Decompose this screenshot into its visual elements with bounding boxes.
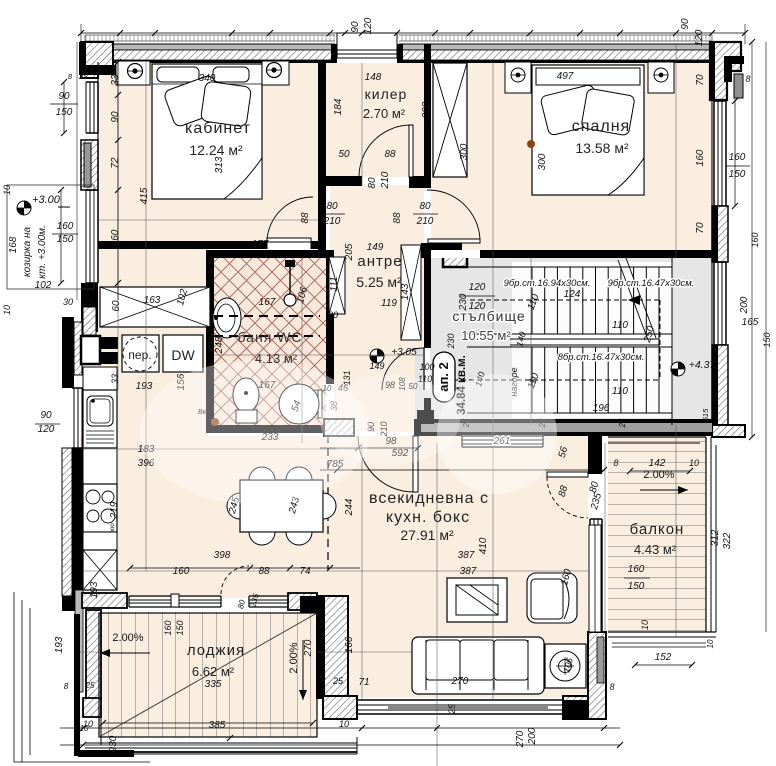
svg-text:210: 210: [323, 216, 341, 227]
svg-text:102: 102: [35, 280, 52, 291]
svg-text:80: 80: [419, 201, 431, 212]
svg-text:160: 160: [729, 152, 746, 163]
svg-text:9бр.ст.16.94х30см.: 9бр.ст.16.94х30см.: [504, 278, 591, 289]
svg-text:антре: антре: [357, 253, 402, 270]
svg-text:10.55 м²: 10.55 м²: [461, 328, 511, 343]
svg-text:88: 88: [392, 212, 403, 224]
svg-text:149: 149: [369, 361, 384, 371]
svg-text:4.13 м²: 4.13 м²: [255, 351, 298, 366]
svg-text:33: 33: [110, 374, 120, 384]
svg-text:8: 8: [320, 676, 325, 686]
svg-text:200: 200: [527, 727, 538, 745]
svg-text:300: 300: [459, 143, 470, 160]
svg-text:167: 167: [259, 297, 276, 308]
svg-text:ап. 2: ап. 2: [436, 362, 451, 392]
svg-text:90: 90: [110, 111, 121, 123]
svg-text:8: 8: [609, 682, 614, 692]
svg-text:930: 930: [108, 735, 119, 752]
svg-text:210: 210: [380, 171, 391, 189]
svg-text:335: 335: [205, 679, 222, 690]
svg-text:25: 25: [82, 297, 94, 307]
svg-text:8: 8: [745, 74, 750, 84]
svg-text:DW: DW: [171, 347, 195, 363]
svg-text:160: 160: [628, 564, 645, 575]
svg-text:килер: килер: [365, 86, 408, 102]
svg-text:+3.00: +3.00: [32, 194, 61, 206]
svg-text:+3.05: +3.05: [391, 347, 417, 358]
svg-text:25: 25: [447, 703, 457, 715]
svg-text:165: 165: [742, 317, 759, 328]
svg-text:150: 150: [729, 169, 746, 180]
svg-text:стълбище: стълбище: [452, 308, 525, 324]
svg-text:8бр.ст.16.47х30см.: 8бр.ст.16.47х30см.: [558, 352, 645, 363]
svg-text:205: 205: [344, 243, 355, 261]
svg-text:90: 90: [40, 410, 52, 421]
svg-text:142: 142: [649, 458, 666, 469]
svg-text:6.62 м²: 6.62 м²: [192, 664, 235, 679]
svg-text:4.43 м²: 4.43 м²: [634, 542, 677, 557]
svg-text:312: 312: [710, 529, 721, 546]
svg-text:163: 163: [144, 295, 161, 306]
svg-text:кухн. бокс: кухн. бокс: [386, 509, 470, 526]
svg-text:149: 149: [367, 242, 384, 253]
svg-text:90: 90: [58, 91, 70, 102]
svg-text:12.24 м²: 12.24 м²: [189, 142, 243, 158]
svg-text:70: 70: [695, 222, 706, 234]
svg-text:72: 72: [110, 157, 121, 169]
svg-text:150: 150: [57, 234, 74, 245]
svg-text:150: 150: [56, 107, 73, 118]
svg-text:10: 10: [689, 458, 699, 468]
svg-text:кт. +3.00м.: кт. +3.00м.: [37, 225, 48, 279]
svg-text:10: 10: [339, 719, 349, 729]
svg-text:150: 150: [762, 332, 772, 347]
svg-text:415: 415: [139, 187, 150, 204]
svg-text:110: 110: [612, 320, 628, 331]
svg-text:27.91 м²: 27.91 м²: [400, 527, 454, 543]
svg-text:100: 100: [419, 362, 434, 372]
svg-text:80: 80: [326, 201, 338, 212]
svg-text:пер.: пер.: [128, 348, 151, 362]
svg-text:25: 25: [618, 418, 627, 428]
svg-text:270: 270: [303, 639, 314, 657]
svg-text:160: 160: [163, 620, 173, 635]
svg-text:8: 8: [613, 458, 618, 468]
svg-text:270: 270: [515, 730, 526, 748]
svg-text:270: 270: [451, 676, 469, 687]
svg-text:340: 340: [199, 73, 216, 84]
svg-text:152: 152: [655, 652, 672, 663]
svg-text:70: 70: [695, 74, 706, 86]
svg-text:10: 10: [2, 185, 12, 195]
svg-text:балкон: балкон: [630, 521, 685, 538]
svg-text:90: 90: [350, 21, 361, 33]
svg-text:10: 10: [2, 305, 12, 315]
svg-text:398: 398: [214, 550, 231, 561]
svg-text:90: 90: [680, 18, 691, 30]
svg-text:120: 120: [363, 17, 374, 34]
svg-text:497: 497: [557, 71, 574, 82]
svg-text:120: 120: [469, 282, 486, 293]
svg-text:30: 30: [63, 297, 73, 307]
svg-text:515: 515: [701, 408, 710, 421]
svg-text:120: 120: [38, 424, 55, 435]
svg-text:119: 119: [381, 298, 397, 309]
svg-text:9бр.ст.16.47х30см.: 9бр.ст.16.47х30см.: [608, 278, 695, 289]
svg-text:160: 160: [695, 149, 706, 166]
svg-text:200: 200: [739, 296, 750, 314]
svg-text:баня WC: баня WC: [237, 329, 302, 345]
svg-text:160: 160: [110, 229, 121, 246]
svg-text:200: 200: [421, 101, 432, 119]
svg-text:111: 111: [329, 276, 340, 291]
svg-text:лоджия: лоджия: [187, 642, 245, 659]
svg-text:33: 33: [110, 74, 121, 86]
svg-text:30: 30: [328, 310, 338, 320]
svg-text:160: 160: [750, 232, 760, 247]
svg-text:230: 230: [446, 333, 456, 349]
svg-text:160: 160: [57, 221, 74, 232]
svg-text:124: 124: [564, 289, 581, 300]
svg-text:кабинет: кабинет: [185, 120, 251, 137]
svg-text:110: 110: [612, 386, 628, 397]
svg-text:387: 387: [460, 566, 477, 577]
svg-text:10: 10: [706, 639, 715, 648]
svg-text:13.58 м²: 13.58 м²: [575, 140, 629, 156]
svg-text:150: 150: [175, 620, 185, 635]
svg-text:25: 25: [78, 72, 88, 81]
svg-text:козирка на: козирка на: [22, 227, 33, 278]
svg-text:300: 300: [537, 153, 548, 170]
svg-text:всекидневна с: всекидневна с: [369, 490, 489, 507]
svg-text:244: 244: [344, 498, 355, 516]
svg-text:8: 8: [64, 682, 69, 691]
svg-text:313: 313: [214, 156, 225, 173]
svg-text:120: 120: [694, 29, 705, 46]
svg-text:219: 219: [109, 501, 120, 519]
svg-text:184: 184: [333, 98, 344, 115]
svg-text:177: 177: [252, 239, 269, 250]
svg-text:196: 196: [593, 403, 610, 414]
svg-text:387: 387: [458, 550, 475, 561]
svg-text:80: 80: [367, 177, 378, 189]
svg-text:150: 150: [628, 581, 645, 592]
svg-text:193: 193: [89, 581, 100, 598]
svg-text:25: 25: [332, 676, 344, 686]
svg-text:410: 410: [478, 537, 489, 554]
svg-text:2.00%: 2.00%: [643, 469, 674, 481]
svg-text:193: 193: [136, 381, 153, 392]
svg-text:2.70 м²: 2.70 м²: [363, 106, 406, 121]
svg-text:60: 60: [111, 300, 122, 312]
svg-text:2.00%: 2.00%: [288, 642, 300, 673]
svg-text:193: 193: [54, 636, 65, 653]
svg-text:168: 168: [8, 236, 19, 253]
svg-text:248: 248: [214, 336, 225, 354]
svg-text:385: 385: [209, 720, 226, 731]
svg-text:210: 210: [416, 216, 434, 227]
svg-text:2.00%: 2.00%: [112, 632, 143, 644]
svg-text:88: 88: [384, 149, 396, 160]
svg-text:71: 71: [358, 677, 369, 688]
svg-text:10: 10: [80, 724, 89, 733]
svg-text:166: 166: [344, 636, 355, 653]
svg-text:50: 50: [338, 149, 350, 160]
svg-text:322: 322: [722, 532, 733, 549]
svg-text:148: 148: [365, 72, 382, 83]
svg-text:88: 88: [300, 212, 311, 224]
svg-text:25: 25: [85, 681, 95, 690]
svg-text:5.25 м²: 5.25 м²: [356, 274, 402, 290]
svg-text:10: 10: [640, 620, 650, 630]
svg-text:спалня: спалня: [572, 118, 630, 135]
